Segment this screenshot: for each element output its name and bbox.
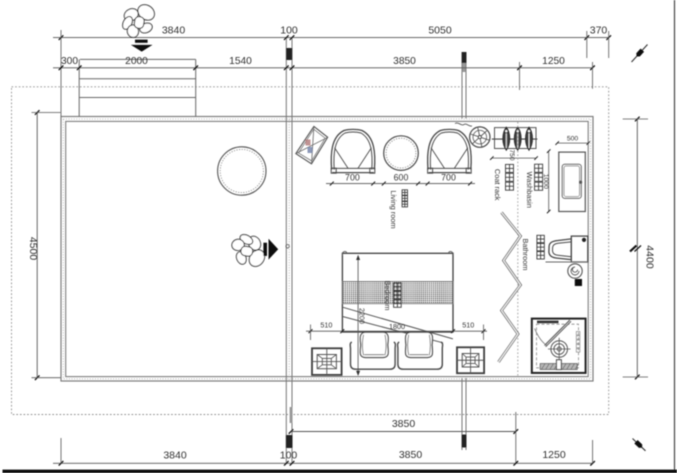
svg-text:300: 300 bbox=[61, 56, 78, 67]
svg-text:1250: 1250 bbox=[542, 449, 566, 461]
svg-text:3840: 3840 bbox=[163, 450, 187, 462]
svg-text:1540: 1540 bbox=[229, 56, 252, 67]
svg-text:100: 100 bbox=[280, 450, 298, 462]
svg-text:5050: 5050 bbox=[428, 25, 452, 37]
svg-text:3840: 3840 bbox=[162, 25, 186, 37]
svg-text:500: 500 bbox=[567, 135, 579, 142]
svg-text:700: 700 bbox=[345, 172, 360, 182]
svg-text:2200: 2200 bbox=[358, 308, 367, 324]
svg-text:1800: 1800 bbox=[389, 322, 405, 331]
svg-text:2000: 2000 bbox=[125, 56, 148, 67]
svg-text:Coat rack: Coat rack bbox=[493, 169, 502, 201]
svg-text:3850: 3850 bbox=[393, 56, 416, 67]
svg-text:700: 700 bbox=[441, 172, 456, 182]
svg-text:Bedroom: Bedroom bbox=[383, 281, 392, 311]
svg-text:370: 370 bbox=[590, 25, 608, 37]
svg-text:510: 510 bbox=[462, 321, 474, 330]
svg-text:3850: 3850 bbox=[399, 449, 423, 461]
svg-text:1250: 1250 bbox=[542, 56, 565, 67]
svg-text:Bathroom: Bathroom bbox=[521, 238, 530, 270]
svg-text:4500: 4500 bbox=[27, 237, 39, 261]
svg-text:Washbasin: Washbasin bbox=[525, 172, 534, 208]
svg-text:100: 100 bbox=[280, 25, 298, 37]
svg-text:750: 750 bbox=[508, 149, 515, 160]
svg-text:4400: 4400 bbox=[643, 245, 655, 269]
svg-text:600: 600 bbox=[394, 172, 409, 182]
svg-text:Living room: Living room bbox=[389, 190, 398, 228]
svg-text:3850: 3850 bbox=[392, 418, 416, 430]
svg-text:510: 510 bbox=[320, 321, 332, 330]
